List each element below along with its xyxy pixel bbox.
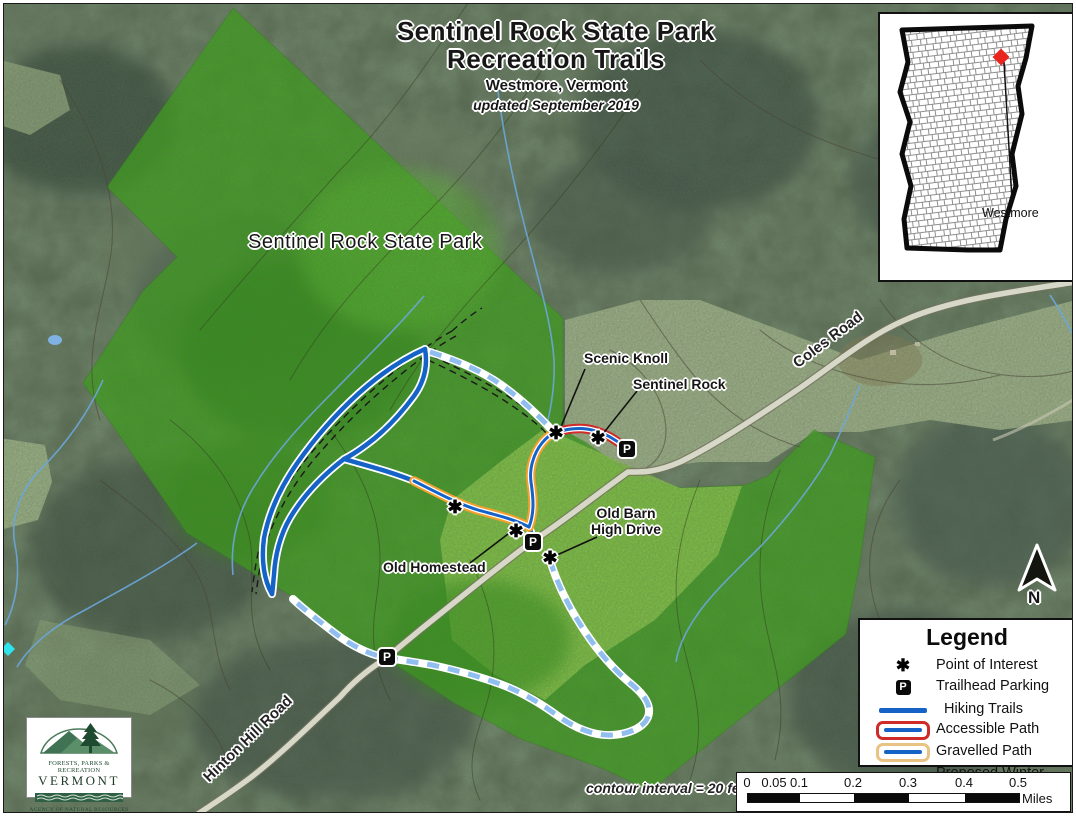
label-old-barn-line2: High Drive: [591, 521, 661, 537]
scale-unit-label: Miles: [1022, 791, 1052, 806]
label-old-barn-line1: Old Barn: [591, 505, 661, 521]
scale-bar-graphic: [747, 793, 1020, 803]
legend-row-hiking: Hiking Trails: [860, 700, 1074, 720]
scale-tick: 0.3: [899, 775, 917, 790]
scale-tick: 0: [743, 775, 750, 790]
scale-tick: 0.2: [844, 775, 862, 790]
poi-marker-sentinel-rock: ✱: [587, 427, 609, 449]
poi-marker-scenic-knoll: ✱: [545, 422, 567, 444]
legend-row-poi: ✱ Point of Interest: [860, 656, 1074, 676]
logo-text-line3: AGENCY OF NATURAL RESOURCES: [27, 807, 131, 813]
legend-row-gravelled: Gravelled Path: [860, 742, 1074, 762]
park-name-label: Sentinel Rock State Park: [248, 231, 482, 254]
parking-marker-old-homestead: P: [525, 534, 541, 550]
vermont-inset-map: Westmore: [878, 12, 1074, 282]
logo-water-band: [35, 793, 123, 802]
legend-row-accessible: Accessible Path: [860, 720, 1074, 740]
map-page: Sentinel Rock State Park Recreation Trai…: [0, 0, 1076, 816]
legend-label: Point of Interest: [936, 657, 1038, 673]
north-arrow-icon: [1008, 542, 1066, 594]
map-title-line2: Recreation Trails: [447, 44, 665, 75]
poi-marker-old-barn: ✱: [539, 547, 561, 569]
parking-marker-coles-road: P: [619, 441, 635, 457]
label-scenic-knoll: Scenic Knoll: [584, 350, 668, 366]
contour-interval-note: contour interval = 20 feet: [586, 780, 752, 796]
logo-text-line1: FORESTS, PARKS & RECREATION: [27, 760, 131, 774]
poi-icon: ✱: [874, 656, 932, 676]
logo-text-line2: VERMONT: [27, 773, 131, 789]
legend-label: Hiking Trails: [944, 701, 1023, 717]
poi-marker-old-homestead: ✱: [505, 520, 527, 542]
logo-mountain-graphic: [33, 720, 125, 754]
label-old-barn: Old Barn High Drive: [591, 505, 661, 537]
vermont-state-graphic: [880, 14, 1068, 276]
map-title-updated: updated September 2019: [473, 97, 639, 113]
pond: [48, 335, 62, 345]
map-title-location: Westmore, Vermont: [486, 77, 627, 94]
scale-bar: 0 0.05 0.1 0.2 0.3 0.4 0.5 Miles: [736, 772, 1071, 812]
parking-marker-hinton-hill: P: [379, 649, 395, 665]
legend-label: Accessible Path: [936, 721, 1039, 737]
scale-tick: 0.4: [955, 775, 973, 790]
legend-title: Legend: [860, 624, 1074, 651]
accessible-path-symbol: [874, 720, 932, 740]
scale-tick: 0.1: [790, 775, 808, 790]
legend-label: Trailhead Parking: [936, 678, 1049, 694]
gravelled-path-symbol: [874, 742, 932, 762]
label-old-homestead: Old Homestead: [383, 559, 486, 575]
legend-panel: Legend ✱ Point of Interest P Trailhead P…: [858, 618, 1076, 767]
parking-icon: P: [874, 677, 932, 697]
scale-tick: 0.5: [1009, 775, 1027, 790]
legend-label: Gravelled Path: [936, 743, 1032, 759]
map-title-line1: Sentinel Rock State Park: [397, 16, 715, 47]
legend-row-parking: P Trailhead Parking: [860, 677, 1074, 697]
scale-tick: 0.05: [761, 775, 786, 790]
inset-town-label: Westmore: [982, 206, 1039, 220]
label-sentinel-rock: Sentinel Rock: [633, 376, 726, 392]
agency-logo: FORESTS, PARKS & RECREATION VERMONT AGEN…: [26, 717, 132, 798]
hiking-trail-symbol: [874, 700, 932, 720]
poi-marker-gravel-path: ✱: [444, 496, 466, 518]
